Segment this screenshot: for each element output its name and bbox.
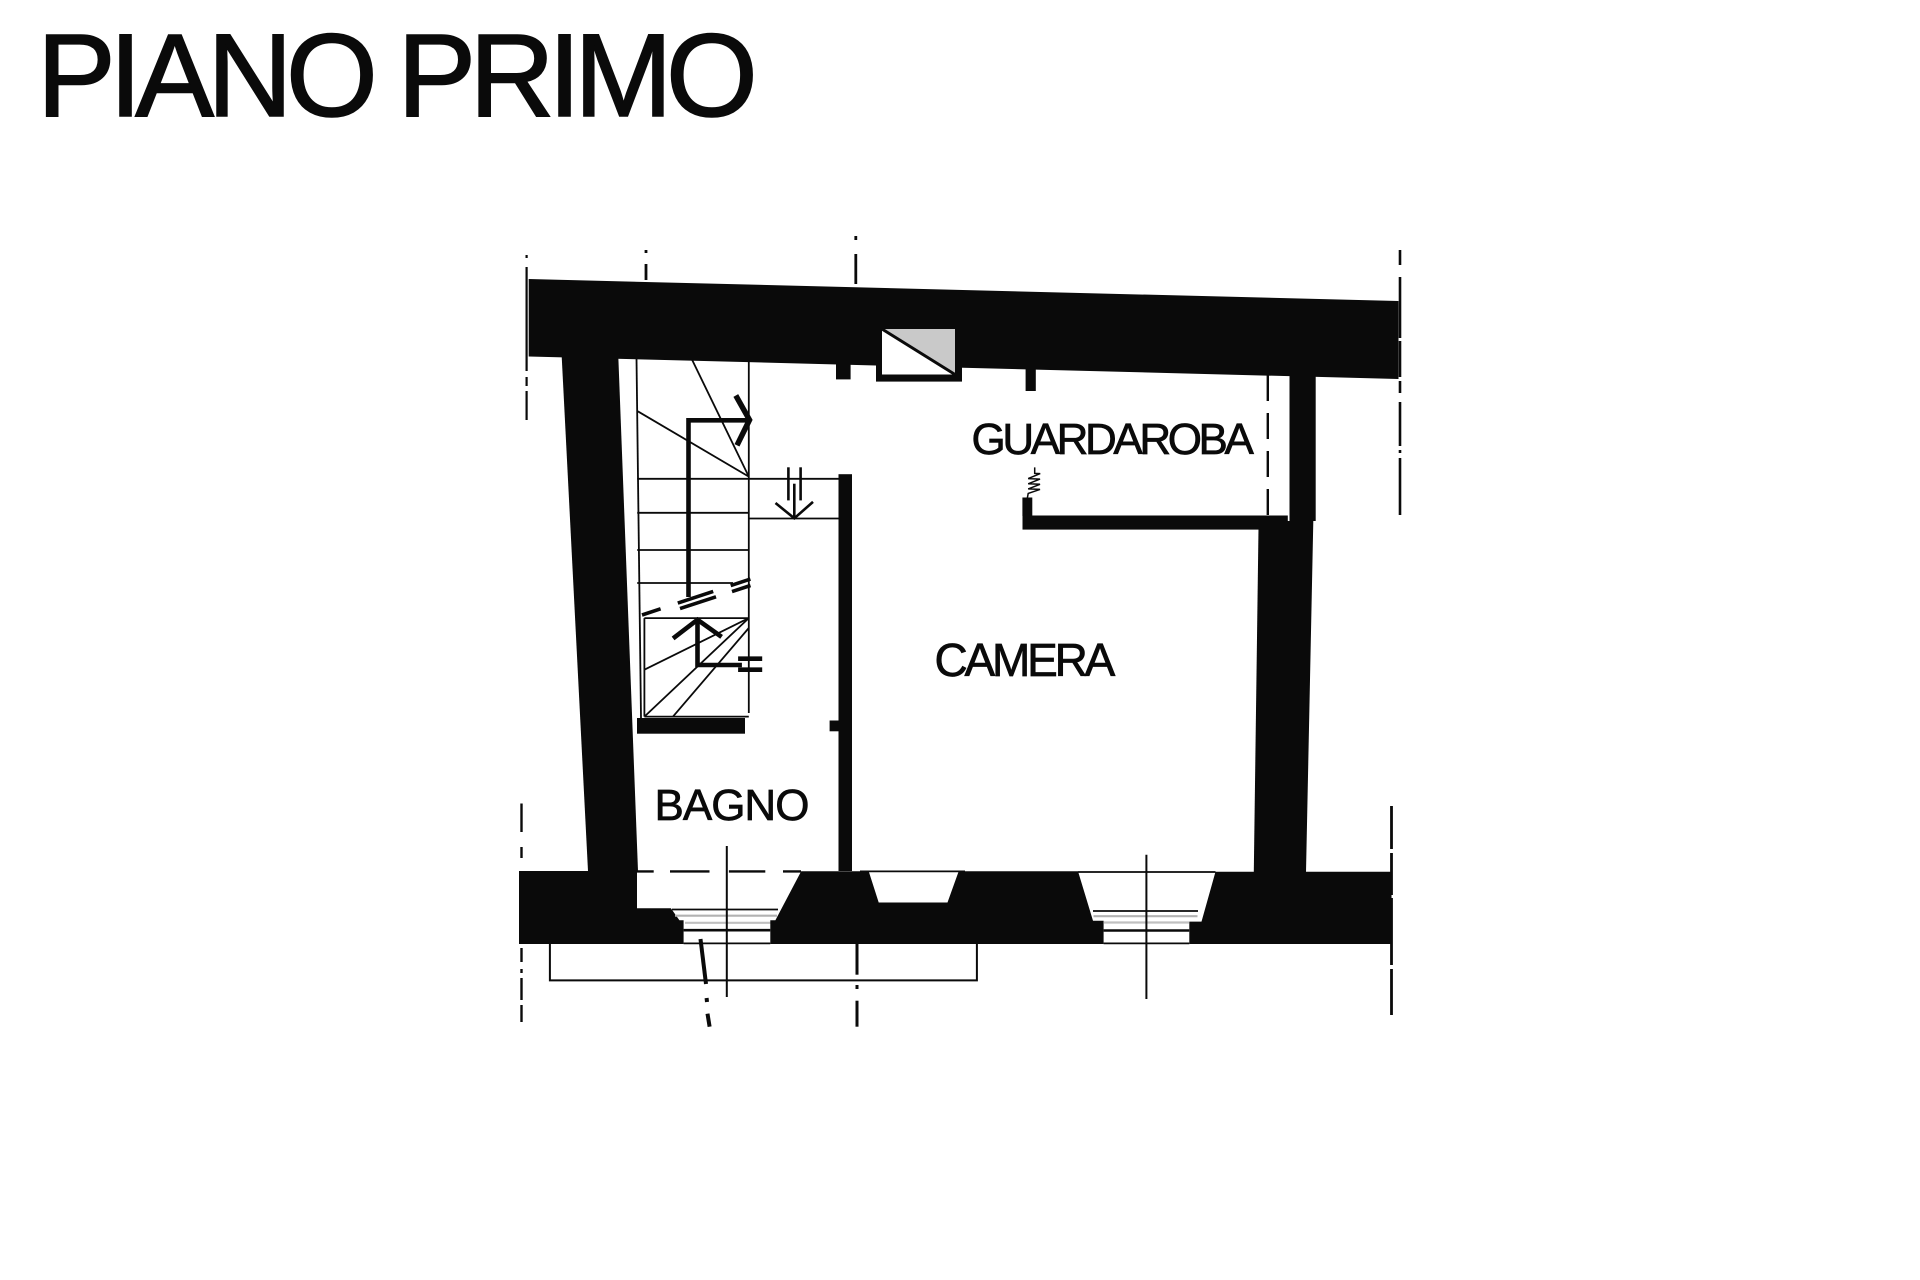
svg-text:GUARDAROBA: GUARDAROBA — [972, 415, 1255, 464]
svg-text:BAGNO: BAGNO — [655, 781, 809, 830]
svg-text:PIANO PRIMO: PIANO PRIMO — [37, 10, 753, 142]
svg-text:CAMERA: CAMERA — [935, 634, 1116, 686]
